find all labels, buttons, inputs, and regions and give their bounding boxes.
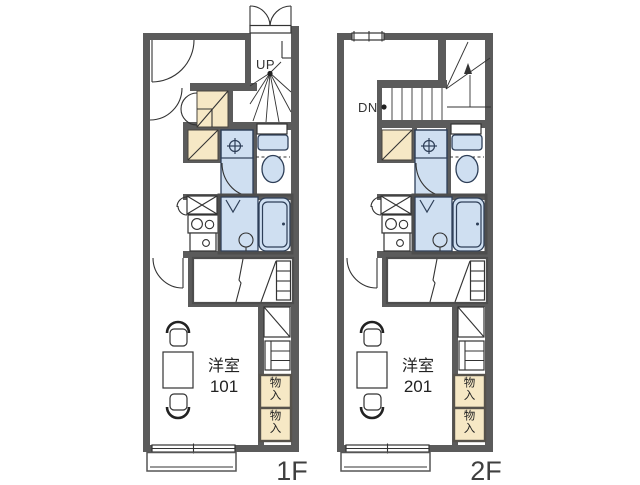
storage-column-1f: 物入 物入 [260,307,291,441]
kitchen-1f [177,196,218,251]
kitchen-bifold-lower [178,206,187,215]
balcony-2f [341,444,430,472]
desk [163,352,193,388]
bathroom-1f [219,195,292,253]
toilet-tank [258,135,288,150]
toilet-bowl [262,156,284,183]
room-door-1f [153,258,183,288]
balcony [341,453,430,472]
storage-column-2f: 物入 物入 [454,307,485,441]
top-window-2f [352,31,384,42]
room-number-2f: 201 [404,377,432,396]
toilet-tank [452,135,482,150]
chair-seat-top [364,329,381,346]
toilet-room-1f [256,124,290,183]
closet-label-lower-1f: 物入 [270,409,282,436]
entrance-1f [250,6,291,33]
furniture-2f [357,322,387,418]
desk [357,352,387,388]
floor-plan-2f: DN [337,31,502,485]
balcony-1f [147,444,236,472]
room-door-2f [347,258,377,288]
room-door-swing [153,258,183,288]
bathtub [259,198,290,251]
toilet-window [451,124,481,134]
furniture-1f [163,322,193,418]
closet-label-upper-2f: 物入 [464,376,476,403]
bifold-door-upper [181,93,197,109]
shelf-unit [265,341,290,370]
entrance-door-left-swing [250,6,270,26]
stair-direction-label-2f: DN [358,100,378,115]
closet-label-upper-1f: 物入 [270,376,282,403]
chair-seat-top [170,329,187,346]
room-name-2f: 洋室 [402,357,434,375]
hall-doors-1f [150,40,194,120]
toilet-window [257,124,287,134]
kitchen-2f [371,196,412,251]
balcony [147,453,236,472]
shelf-unit [459,341,484,370]
stair-start-dot [381,104,386,109]
bathtub [453,198,484,251]
stair-direction-label-1f: UP [256,57,275,72]
entrance-threshold [250,26,291,34]
bed-1f [193,258,293,303]
staircase-1f: UP [250,41,291,122]
closet-label-lower-2f: 物入 [464,409,476,436]
washroom-1f [221,130,253,196]
room-number-1f: 101 [210,377,238,396]
floor-plan-1f: UP [143,6,308,485]
entrance-door-right-swing [270,6,291,26]
stair-direction-arrow [464,63,472,74]
toilet-room-2f [450,124,484,183]
closets-2f [382,130,412,160]
floor-plan-page: UP [0,0,640,485]
room-door-swing [347,258,377,288]
floor-plan-canvas: UP [0,0,640,485]
toilet-bowl [456,156,478,183]
chair-seat-bottom [364,394,381,410]
bed-2f [387,258,487,303]
floor-label-1f: 1F [276,456,308,485]
chair-seat-bottom [170,394,187,410]
corridor-door-swing [150,88,182,120]
bathroom-2f [413,195,486,253]
room-name-1f: 洋室 [208,357,240,375]
hall-door-swing [152,40,194,82]
washroom-2f [415,130,447,196]
floor-label-2f: 2F [470,456,502,485]
kitchen-bifold-lower [372,206,381,215]
